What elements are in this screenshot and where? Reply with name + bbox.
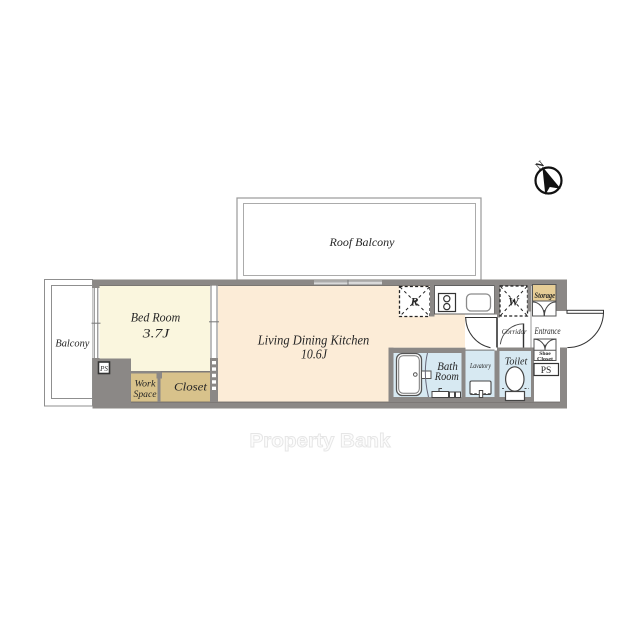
svg-text:PS: PS [99, 365, 108, 373]
svg-text:Closet: Closet [174, 380, 208, 394]
svg-text:Entrance: Entrance [534, 327, 561, 337]
svg-text:Bed Room: Bed Room [131, 309, 181, 324]
svg-text:Living Dining Kitchen: Living Dining Kitchen [257, 333, 370, 348]
svg-text:R: R [409, 295, 418, 309]
svg-text:Work: Work [135, 380, 157, 390]
svg-text:Property Bank: Property Bank [250, 430, 391, 452]
svg-text:Storage: Storage [535, 291, 556, 300]
svg-text:3.7J: 3.7J [142, 325, 171, 340]
svg-text:Balcony: Balcony [55, 338, 89, 349]
svg-text:Roof Balcony: Roof Balcony [329, 235, 396, 249]
svg-text:Room: Room [434, 371, 459, 383]
svg-text:W: W [508, 295, 520, 309]
svg-text:10.6J: 10.6J [301, 347, 328, 362]
svg-text:Toilet: Toilet [505, 356, 528, 368]
svg-text:PS: PS [541, 366, 552, 376]
svg-text:Corridor: Corridor [502, 327, 528, 336]
svg-text:Lavatory: Lavatory [469, 361, 491, 370]
svg-text:Space: Space [134, 390, 157, 400]
svg-text:Closet: Closet [537, 356, 553, 362]
